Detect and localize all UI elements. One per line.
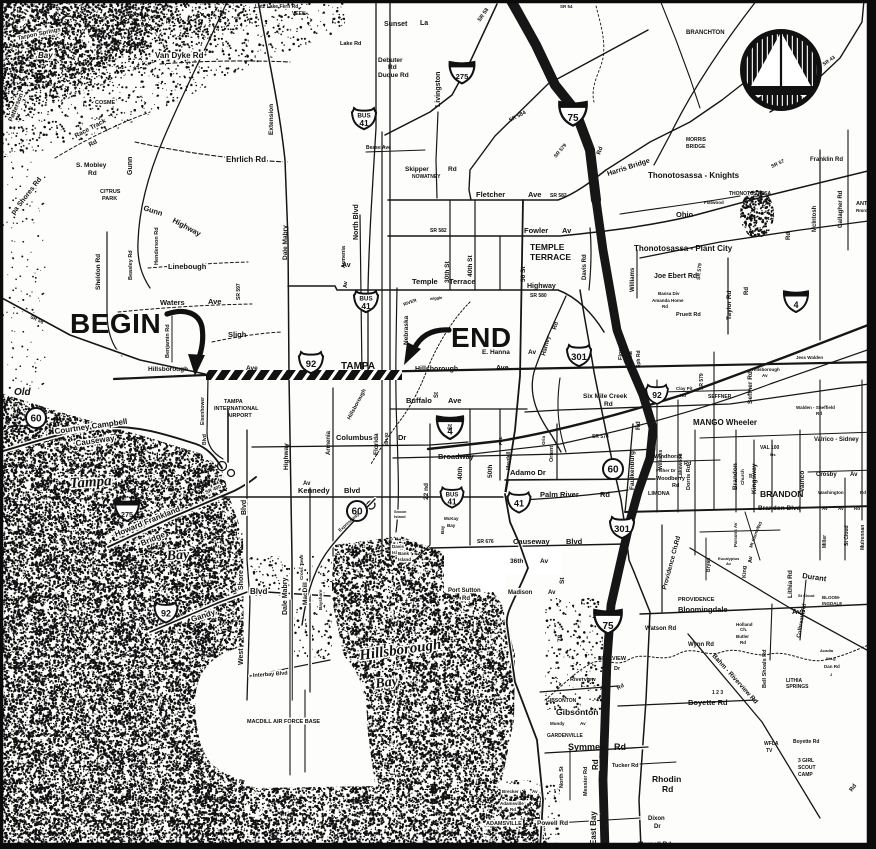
svg-text:SPRINGS: SPRINGS bbox=[786, 684, 809, 690]
svg-text:Av: Av bbox=[850, 472, 858, 478]
svg-text:Av: Av bbox=[822, 506, 828, 511]
svg-text:Nebraska: Nebraska bbox=[403, 315, 410, 345]
svg-text:Six Mile Creek: Six Mile Creek bbox=[583, 393, 627, 400]
svg-text:SR 579: SR 579 bbox=[699, 373, 705, 390]
svg-text:Franklin Rd: Franklin Rd bbox=[810, 157, 843, 163]
svg-text:SEFFNER: SEFFNER bbox=[708, 394, 732, 400]
svg-text:Skipper: Skipper bbox=[405, 166, 429, 173]
svg-text:Washington: Washington bbox=[818, 490, 844, 495]
svg-text:CITRUS: CITRUS bbox=[100, 189, 121, 195]
svg-text:Dr: Dr bbox=[398, 433, 406, 442]
svg-text:Sligh: Sligh bbox=[228, 330, 247, 339]
svg-text:Sheldon Rd: Sheldon Rd bbox=[95, 254, 102, 290]
svg-text:West: West bbox=[238, 648, 245, 665]
svg-text:Boyette Rd: Boyette Rd bbox=[688, 698, 728, 707]
svg-text:St: St bbox=[559, 577, 566, 584]
svg-text:North Blvd: North Blvd bbox=[353, 204, 360, 240]
svg-text:Dale Mabry: Dale Mabry bbox=[282, 578, 289, 615]
svg-text:Church: Church bbox=[740, 469, 745, 485]
svg-text:Kennedy: Kennedy bbox=[298, 486, 331, 495]
svg-text:Rd: Rd bbox=[635, 421, 642, 430]
svg-text:Linebough: Linebough bbox=[168, 262, 207, 271]
svg-text:40th St: 40th St bbox=[467, 254, 474, 277]
svg-text:CAMP: CAMP bbox=[798, 772, 813, 778]
svg-text:Rd: Rd bbox=[662, 304, 668, 309]
svg-text:Crosby: Crosby bbox=[816, 472, 837, 478]
svg-text:Henderson Rd: Henderson Rd bbox=[154, 227, 160, 265]
svg-text:Lutz Lake Fern Rd: Lutz Lake Fern Rd bbox=[255, 4, 298, 10]
svg-text:Clay Pit: Clay Pit bbox=[676, 386, 693, 391]
svg-text:GARDENVILLE: GARDENVILLE bbox=[547, 733, 584, 739]
svg-text:Av: Av bbox=[342, 262, 351, 269]
svg-text:92: 92 bbox=[652, 390, 662, 400]
svg-text:St: St bbox=[434, 392, 440, 398]
svg-text:Bay: Bay bbox=[440, 525, 445, 534]
svg-text:Rd: Rd bbox=[604, 401, 613, 408]
svg-text:Tucker Rd: Tucker Rd bbox=[612, 763, 639, 769]
svg-text:Shore: Shore bbox=[238, 570, 245, 590]
svg-text:275: 275 bbox=[121, 510, 133, 519]
svg-text:Rd: Rd bbox=[854, 506, 860, 511]
svg-text:Av: Av bbox=[762, 373, 768, 378]
svg-text:SR 54: SR 54 bbox=[560, 4, 573, 9]
svg-text:Sph Rd: Sph Rd bbox=[636, 351, 642, 369]
svg-text:Brecker: Brecker bbox=[502, 789, 519, 794]
svg-text:Pruett Rd: Pruett Rd bbox=[676, 312, 701, 318]
svg-text:Island: Island bbox=[398, 557, 411, 562]
svg-text:Riverview: Riverview bbox=[570, 677, 596, 683]
svg-text:Taylor Rd: Taylor Rd bbox=[726, 290, 733, 320]
svg-text:Duque Rd: Duque Rd bbox=[378, 72, 409, 79]
svg-text:COSME: COSME bbox=[95, 100, 116, 106]
svg-text:Island: Island bbox=[394, 514, 406, 519]
svg-text:78: 78 bbox=[557, 634, 564, 642]
svg-text:Bay: Bay bbox=[38, 51, 53, 60]
svg-text:41: 41 bbox=[359, 118, 369, 128]
svg-text:Av: Av bbox=[528, 349, 536, 356]
svg-text:THONOTOSASSA: THONOTOSASSA bbox=[729, 191, 772, 197]
svg-text:MANGO Wheeler: MANGO Wheeler bbox=[693, 418, 757, 427]
svg-text:Parsons Av: Parsons Av bbox=[733, 522, 738, 547]
svg-text:Bank: Bank bbox=[398, 551, 410, 556]
svg-text:Orient: Orient bbox=[549, 446, 555, 462]
svg-text:SR 676: SR 676 bbox=[477, 539, 494, 545]
svg-text:BRANCHTON: BRANCHTON bbox=[686, 30, 725, 36]
svg-text:Rd: Rd bbox=[510, 807, 516, 812]
svg-text:Dan Rd: Dan Rd bbox=[824, 664, 840, 669]
svg-text:Davis: Davis bbox=[392, 544, 405, 549]
svg-text:VEEN: VEEN bbox=[292, 11, 306, 17]
svg-text:Kingsway: Kingsway bbox=[751, 463, 758, 494]
svg-text:Av: Av bbox=[303, 481, 311, 487]
svg-text:Boyette Rd: Boyette Rd bbox=[793, 739, 819, 745]
svg-text:Messier Rd: Messier Rd bbox=[583, 767, 589, 796]
svg-text:TERRACE: TERRACE bbox=[530, 252, 571, 262]
svg-text:North St: North St bbox=[559, 766, 565, 788]
svg-text:92: 92 bbox=[306, 359, 317, 370]
svg-text:Rd: Rd bbox=[88, 170, 97, 177]
svg-text:Sunset: Sunset bbox=[384, 21, 408, 28]
svg-text:Cross Town: Cross Town bbox=[299, 554, 304, 580]
svg-text:40th: 40th bbox=[457, 467, 464, 480]
svg-text:Dixon: Dixon bbox=[648, 816, 665, 822]
svg-text:Terrace: Terrace bbox=[449, 277, 476, 286]
svg-text:BELLVIEW: BELLVIEW bbox=[598, 656, 627, 662]
svg-text:Hillsborough: Hillsborough bbox=[148, 366, 188, 373]
svg-text:VAL 100: VAL 100 bbox=[760, 445, 779, 451]
svg-text:Bay: Bay bbox=[165, 547, 190, 564]
svg-text:Williams: Williams bbox=[658, 450, 664, 470]
svg-text:22 nd: 22 nd bbox=[423, 483, 430, 500]
svg-text:Walden - Sheffield: Walden - Sheffield bbox=[796, 405, 835, 410]
svg-text:Lakewood: Lakewood bbox=[678, 454, 684, 478]
svg-text:LIMONA: LIMONA bbox=[648, 491, 670, 497]
svg-text:Butler: Butler bbox=[736, 634, 749, 639]
svg-text:36th: 36th bbox=[510, 558, 523, 565]
svg-text:275: 275 bbox=[456, 72, 469, 81]
svg-text:SR 597: SR 597 bbox=[236, 283, 242, 300]
svg-text:St Cloud: St Cloud bbox=[844, 525, 850, 546]
svg-text:NOWATNEY: NOWATNEY bbox=[412, 174, 441, 180]
svg-text:92: 92 bbox=[161, 609, 171, 619]
svg-text:BLOOM-: BLOOM- bbox=[822, 595, 841, 600]
svg-text:Flora: Flora bbox=[618, 346, 624, 360]
svg-text:BEGIN: BEGIN bbox=[70, 308, 161, 339]
svg-text:Rd: Rd bbox=[448, 166, 457, 173]
svg-text:Acadia: Acadia bbox=[820, 648, 834, 653]
svg-text:TAMPA: TAMPA bbox=[341, 361, 375, 372]
svg-text:Brandon: Brandon bbox=[732, 463, 739, 490]
svg-text:Port Sutton: Port Sutton bbox=[448, 588, 481, 594]
svg-text:Rd: Rd bbox=[462, 596, 470, 602]
svg-text:Brandon Blvd: Brandon Blvd bbox=[758, 505, 801, 512]
svg-text:Gibsonton: Gibsonton bbox=[556, 707, 599, 717]
svg-text:301: 301 bbox=[614, 524, 630, 535]
svg-text:Valrico - Sidney: Valrico - Sidney bbox=[814, 437, 859, 443]
svg-text:Van Dyke Rd: Van Dyke Rd bbox=[155, 51, 204, 60]
svg-text:Av: Av bbox=[562, 226, 572, 235]
svg-text:BRANDON: BRANDON bbox=[760, 489, 803, 499]
svg-text:Highway: Highway bbox=[283, 443, 290, 470]
svg-text:Rd: Rd bbox=[740, 640, 746, 645]
svg-text:Lithia Rd: Lithia Rd bbox=[787, 570, 794, 598]
svg-text:Mulrennan: Mulrennan bbox=[860, 525, 866, 550]
svg-text:Blvd: Blvd bbox=[344, 486, 361, 495]
svg-text:Maydell: Maydell bbox=[506, 451, 512, 470]
svg-text:Av: Av bbox=[343, 280, 349, 288]
svg-text:La: La bbox=[420, 20, 428, 27]
svg-text:Fowler: Fowler bbox=[524, 226, 548, 235]
svg-text:Columbus: Columbus bbox=[336, 433, 373, 442]
svg-text:King: King bbox=[742, 566, 748, 578]
svg-text:41: 41 bbox=[514, 499, 524, 509]
svg-text:Bell Shoals Rd: Bell Shoals Rd bbox=[762, 649, 768, 688]
svg-text:Bloomingdale: Bloomingdale bbox=[678, 605, 728, 614]
svg-text:41: 41 bbox=[448, 498, 457, 507]
svg-text:4: 4 bbox=[794, 300, 799, 310]
svg-text:41: 41 bbox=[361, 301, 371, 311]
svg-text:Fletcher: Fletcher bbox=[476, 190, 505, 199]
svg-text:Dorris Rd: Dorris Rd bbox=[686, 465, 692, 490]
svg-text:Seffner Rd: Seffner Rd bbox=[747, 371, 754, 404]
svg-text:Rd: Rd bbox=[786, 232, 792, 240]
svg-text:Av: Av bbox=[748, 555, 754, 563]
svg-text:Dale Mabry: Dale Mabry bbox=[282, 225, 289, 260]
svg-text:Rd: Rd bbox=[744, 287, 750, 295]
svg-text:75: 75 bbox=[602, 621, 614, 632]
svg-text:Ave: Ave bbox=[448, 396, 461, 405]
svg-text:Hillsborough: Hillsborough bbox=[752, 367, 780, 372]
svg-text:Ohio: Ohio bbox=[676, 210, 693, 219]
svg-text:MORRIS: MORRIS bbox=[686, 137, 707, 143]
svg-text:TEMPLE: TEMPLE bbox=[530, 242, 565, 252]
svg-text:Rd: Rd bbox=[680, 393, 686, 398]
svg-text:Hillsborough: Hillsborough bbox=[415, 366, 458, 373]
svg-text:MACDILL AIR FORCE BASE: MACDILL AIR FORCE BASE bbox=[247, 719, 320, 725]
svg-text:PARK: PARK bbox=[102, 196, 117, 202]
svg-text:AIRPORT: AIRPORT bbox=[227, 413, 252, 419]
svg-text:56 St: 56 St bbox=[520, 266, 527, 282]
svg-text:MacDill: MacDill bbox=[302, 582, 309, 605]
svg-text:Bay: Bay bbox=[447, 523, 456, 528]
svg-text:Av: Av bbox=[548, 590, 556, 596]
svg-text:Rd: Rd bbox=[672, 483, 679, 489]
svg-text:Madison: Madison bbox=[508, 590, 533, 596]
svg-text:Rd: Rd bbox=[591, 759, 600, 770]
svg-text:Ave: Ave bbox=[208, 297, 221, 306]
svg-text:50th: 50th bbox=[487, 465, 494, 478]
svg-text:Symmes: Symmes bbox=[568, 742, 605, 752]
svg-text:ADAMSVILLE: ADAMSVILLE bbox=[486, 821, 522, 827]
svg-text:SR 582: SR 582 bbox=[550, 193, 567, 199]
svg-text:St: St bbox=[448, 424, 454, 430]
svg-text:J: J bbox=[830, 672, 832, 677]
svg-text:S. Mobley: S. Mobley bbox=[76, 162, 107, 169]
svg-text:SR 580: SR 580 bbox=[530, 293, 547, 299]
svg-text:Extension: Extension bbox=[268, 104, 275, 135]
svg-text:INTERNATIONAL: INTERNATIONAL bbox=[214, 406, 259, 412]
svg-text:Ms: Ms bbox=[770, 452, 776, 457]
svg-text:Bassa Div: Bassa Div bbox=[658, 291, 680, 296]
svg-text:Buffalo: Buffalo bbox=[406, 396, 432, 405]
svg-text:ANT: ANT bbox=[856, 201, 868, 207]
svg-text:Joe Ebert Rd: Joe Ebert Rd bbox=[654, 273, 697, 280]
svg-text:SCOUT: SCOUT bbox=[798, 765, 816, 771]
svg-text:Rd: Rd bbox=[600, 490, 610, 499]
svg-text:Ave: Ave bbox=[246, 365, 258, 372]
svg-text:Ch.: Ch. bbox=[740, 627, 747, 632]
svg-text:GIBSONTON: GIBSONTON bbox=[546, 698, 577, 704]
svg-text:AL: AL bbox=[600, 686, 607, 692]
svg-text:WFLA: WFLA bbox=[764, 741, 779, 747]
svg-text:PAL: PAL bbox=[498, 436, 503, 445]
svg-text:Oria: Oria bbox=[541, 435, 546, 445]
svg-text:Rd: Rd bbox=[388, 64, 397, 71]
svg-text:301: 301 bbox=[571, 352, 587, 363]
svg-text:Gunn: Gunn bbox=[127, 157, 134, 175]
svg-text:Jess Walden: Jess Walden bbox=[796, 355, 823, 360]
svg-text:Faulkenburg: Faulkenburg bbox=[629, 451, 636, 490]
svg-text:Dr: Dr bbox=[614, 666, 621, 672]
svg-text:Armenia: Armenia bbox=[326, 430, 332, 455]
svg-text:Miller: Miller bbox=[822, 535, 828, 548]
svg-text:Waters: Waters bbox=[160, 298, 185, 307]
svg-text:Flatwood: Flatwood bbox=[704, 200, 724, 205]
svg-text:Davis Rd: Davis Rd bbox=[582, 254, 588, 280]
svg-text:75: 75 bbox=[567, 113, 579, 124]
svg-text:E. Hanna: E. Hanna bbox=[482, 349, 510, 356]
svg-text:Av: Av bbox=[726, 561, 732, 566]
svg-text:Dr: Dr bbox=[654, 824, 661, 830]
svg-text:PROVIDENCE: PROVIDENCE bbox=[678, 597, 715, 603]
svg-text:Av: Av bbox=[580, 721, 586, 726]
svg-text:1 2 3: 1 2 3 bbox=[712, 690, 723, 696]
svg-text:Florida: Florida bbox=[373, 433, 380, 455]
svg-text:Ave: Ave bbox=[528, 190, 541, 199]
svg-text:Rd: Rd bbox=[860, 490, 866, 495]
svg-text:Eureka: Eureka bbox=[628, 351, 634, 368]
svg-text:Mundy: Mundy bbox=[550, 721, 565, 726]
svg-text:Bease Ave: Bease Ave bbox=[366, 145, 391, 151]
svg-text:Broadway: Broadway bbox=[438, 452, 475, 461]
svg-text:BRIDGE: BRIDGE bbox=[686, 144, 706, 150]
svg-text:W.Lg: W.Lg bbox=[826, 656, 836, 661]
svg-text:Debuter: Debuter bbox=[378, 57, 403, 64]
svg-text:Thonotosassa - Plant City: Thonotosassa - Plant City bbox=[634, 244, 733, 253]
svg-text:Av: Av bbox=[532, 789, 538, 794]
svg-text:TAMPA: TAMPA bbox=[224, 399, 243, 405]
svg-text:Blvd: Blvd bbox=[566, 537, 583, 546]
svg-text:East Bay: East Bay bbox=[589, 811, 598, 845]
svg-text:Gallagher Rd: Gallagher Rd bbox=[838, 190, 844, 228]
svg-text:McKay: McKay bbox=[444, 516, 459, 521]
svg-text:SR 574: SR 574 bbox=[592, 434, 609, 440]
svg-text:Rhodin: Rhodin bbox=[652, 774, 681, 784]
svg-text:Rd: Rd bbox=[614, 742, 626, 752]
svg-text:Bayshore: Bayshore bbox=[318, 589, 323, 610]
svg-text:Ehrlich Rd: Ehrlich Rd bbox=[226, 155, 266, 164]
svg-text:Wynn Rd: Wynn Rd bbox=[688, 642, 714, 648]
svg-text:Williams: Williams bbox=[630, 267, 636, 292]
svg-text:Temple: Temple bbox=[412, 277, 438, 286]
svg-text:Beasley Rd: Beasley Rd bbox=[128, 250, 134, 280]
svg-text:3 GIRL: 3 GIRL bbox=[798, 758, 814, 764]
svg-text:INGDALE: INGDALE bbox=[822, 601, 842, 606]
svg-text:Ave: Ave bbox=[496, 365, 509, 372]
svg-text:Watson Rd: Watson Rd bbox=[645, 626, 676, 632]
svg-text:Causeway: Causeway bbox=[513, 537, 551, 546]
svg-text:Blvd: Blvd bbox=[241, 500, 248, 515]
svg-text:Thonotosassa - Knights: Thonotosassa - Knights bbox=[648, 171, 740, 180]
svg-text:Amanda Home: Amanda Home bbox=[652, 298, 684, 303]
svg-text:Rmrd: Rmrd bbox=[856, 208, 868, 213]
svg-text:Av: Av bbox=[838, 506, 844, 511]
svg-text:Rd: Rd bbox=[816, 411, 822, 416]
svg-text:McIntosh: McIntosh bbox=[812, 205, 818, 232]
svg-text:SR 92: SR 92 bbox=[384, 432, 389, 445]
svg-text:Av: Av bbox=[540, 558, 548, 565]
svg-text:Blvd: Blvd bbox=[202, 434, 208, 445]
svg-text:Lake Rd: Lake Rd bbox=[340, 41, 361, 47]
svg-text:Powell Rd: Powell Rd bbox=[537, 820, 568, 827]
svg-text:Adamo Dr: Adamo Dr bbox=[510, 468, 546, 477]
svg-text:Eisenhower: Eisenhower bbox=[200, 397, 206, 425]
svg-text:Bryan: Bryan bbox=[706, 558, 712, 572]
svg-text:SR 582: SR 582 bbox=[430, 228, 447, 234]
svg-text:Livingston: Livingston bbox=[435, 72, 442, 107]
svg-text:Tampa: Tampa bbox=[69, 473, 112, 492]
svg-text:Blvd: Blvd bbox=[250, 587, 267, 596]
svg-text:Palm River: Palm River bbox=[540, 490, 579, 499]
svg-text:60: 60 bbox=[607, 465, 619, 476]
svg-text:TV: TV bbox=[766, 748, 773, 754]
svg-text:St Cloud: St Cloud bbox=[798, 593, 815, 598]
svg-text:Rd: Rd bbox=[662, 784, 673, 794]
svg-text:Adamsville: Adamsville bbox=[500, 801, 524, 806]
svg-text:Benjamin Rd: Benjamin Rd bbox=[165, 324, 171, 358]
svg-text:Highway: Highway bbox=[527, 283, 556, 290]
svg-text:Old: Old bbox=[14, 387, 32, 398]
svg-text:60: 60 bbox=[30, 414, 42, 425]
